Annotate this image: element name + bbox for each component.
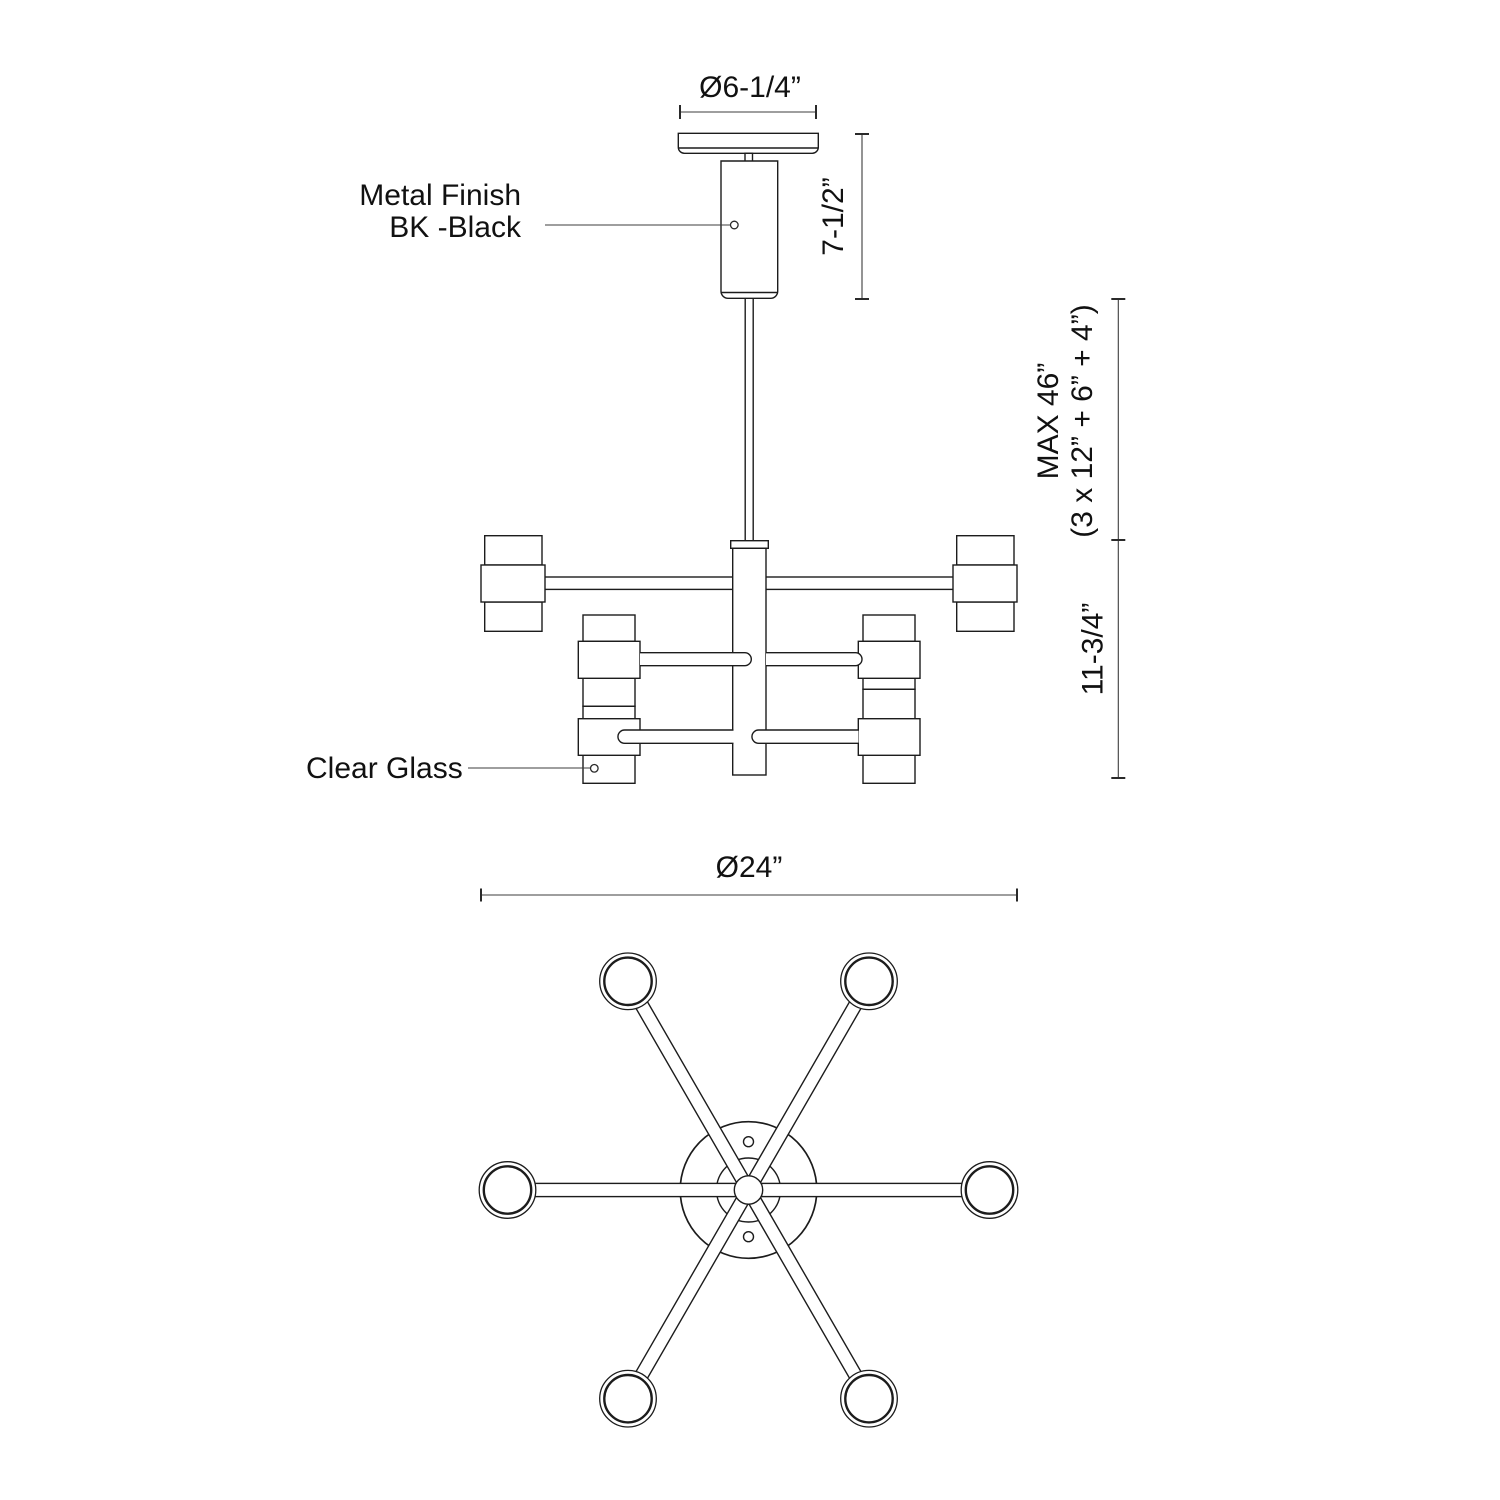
dim-max-height-text-line2: (3 x 12” + 6” + 4”) [1066,304,1099,537]
lamp-circle-lower-right [841,1370,898,1427]
lamp-inner-left [578,615,640,783]
glass-mid-lower [863,689,915,718]
glass-top [583,615,635,641]
plan-arm-left [507,1183,749,1196]
dim-overall-height: MAX 46” (3 x 12” + 6” + 4”) 11-3/4” [1032,299,1125,778]
shade-inner-ring [604,958,651,1005]
chandelier-spec-sheet: Ø6-1/4” [0,0,1500,1500]
screw-hole-bottom [744,1232,754,1242]
socket-holder-upper [858,641,920,678]
technical-drawing: Ø6-1/4” [0,0,1500,1500]
ceiling-canopy [678,133,818,153]
plan-view: Ø24” [479,851,1018,1427]
dim-canopy-diameter: Ø6-1/4” [680,71,816,119]
arm-tier3-left [618,730,734,743]
shade-inner-ring [604,1375,651,1422]
screw-hole-top [744,1137,754,1147]
socket-holder [953,565,1017,602]
glass-bottom [863,755,915,783]
socket-holder [481,565,545,602]
shade-inner-ring [484,1166,531,1213]
glass-top [957,536,1014,565]
lamp-circle-upper-right [841,953,898,1010]
dim-fixture-diameter-text: Ø24” [716,851,783,884]
glass-mid-upper [583,678,635,706]
metal-finish-callout-dot [731,221,739,229]
lamp-inner-right [858,615,920,783]
plan-arm-right [749,1183,991,1196]
dim-canopy-diameter-text: Ø6-1/4” [699,71,801,104]
lamp-circle-lower-left [600,1370,657,1427]
shade-inner-ring [966,1166,1013,1213]
dim-fixture-diameter: Ø24” [481,851,1017,902]
socket-holder-upper [578,641,640,678]
dim-max-height-text-line1: MAX 46” [1032,363,1065,480]
lamp-circle-left [479,1162,536,1219]
side-elevation-view: Ø6-1/4” [306,71,1125,785]
dim-canopy-stem-height: 7-1/2” [817,134,869,299]
clear-glass-callout-dot [591,765,599,773]
glass-top [485,536,542,565]
canopy-nipple [745,153,753,161]
glass-top [863,615,915,641]
mounting-assembly [678,133,818,775]
downrod-stem [721,161,778,298]
lamp-circle-right [961,1162,1018,1219]
glass-mid-lower [583,706,635,718]
socket-holder-lower [858,719,920,756]
glass-bottom [485,602,542,631]
clear-glass-label: Clear Glass [306,752,463,785]
dim-body-height-text: 11-3/4” [1077,603,1110,696]
arm-tier2-right [766,653,862,666]
glass-bottom [957,602,1014,631]
lamp-outer-left [481,536,545,632]
column-flange [731,541,769,549]
metal-finish-label-line1: Metal Finish [359,179,521,212]
metal-finish-label-line2: BK -Black [389,211,522,244]
shade-inner-ring [845,958,892,1005]
lamp-circle-upper-left [600,953,657,1010]
arm-tier2-left [640,653,751,666]
dim-canopy-stem-height-text: 7-1/2” [817,177,850,255]
arm-tier3-right [752,730,859,743]
center-hub-circle [734,1176,762,1204]
shade-inner-ring [845,1375,892,1422]
label-clear-glass: Clear Glass [306,752,598,785]
lamp-outer-right [953,536,1017,632]
hanging-rod [745,298,753,540]
label-metal-finish: Metal Finish BK -Black [359,179,730,244]
glass-mid-upper [863,678,915,689]
